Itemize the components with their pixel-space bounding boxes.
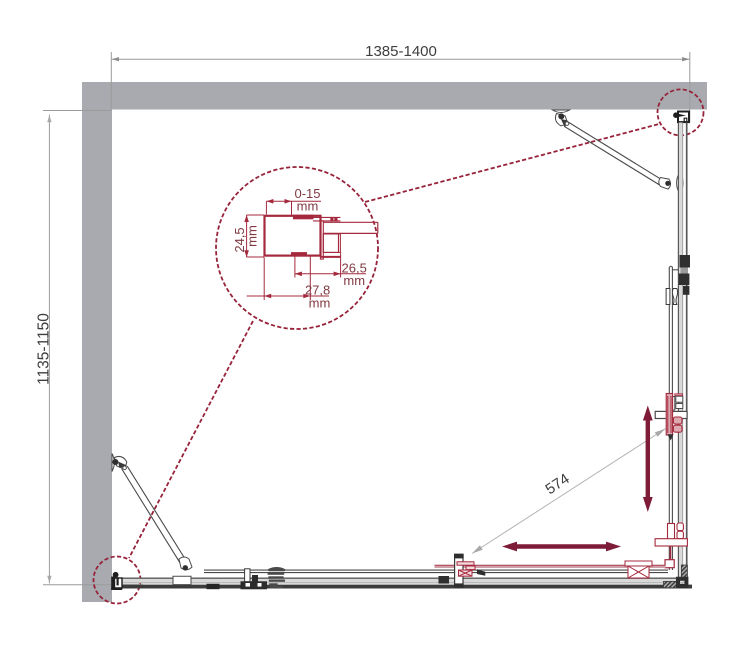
svg-text:1135-1150: 1135-1150 bbox=[36, 313, 53, 385]
svg-text:mm: mm bbox=[297, 199, 319, 214]
svg-text:574: 574 bbox=[542, 470, 572, 498]
svg-text:mm: mm bbox=[309, 295, 331, 310]
svg-text:1385-1400: 1385-1400 bbox=[365, 43, 437, 60]
svg-text:mm: mm bbox=[244, 225, 259, 247]
svg-text:mm: mm bbox=[343, 273, 365, 288]
